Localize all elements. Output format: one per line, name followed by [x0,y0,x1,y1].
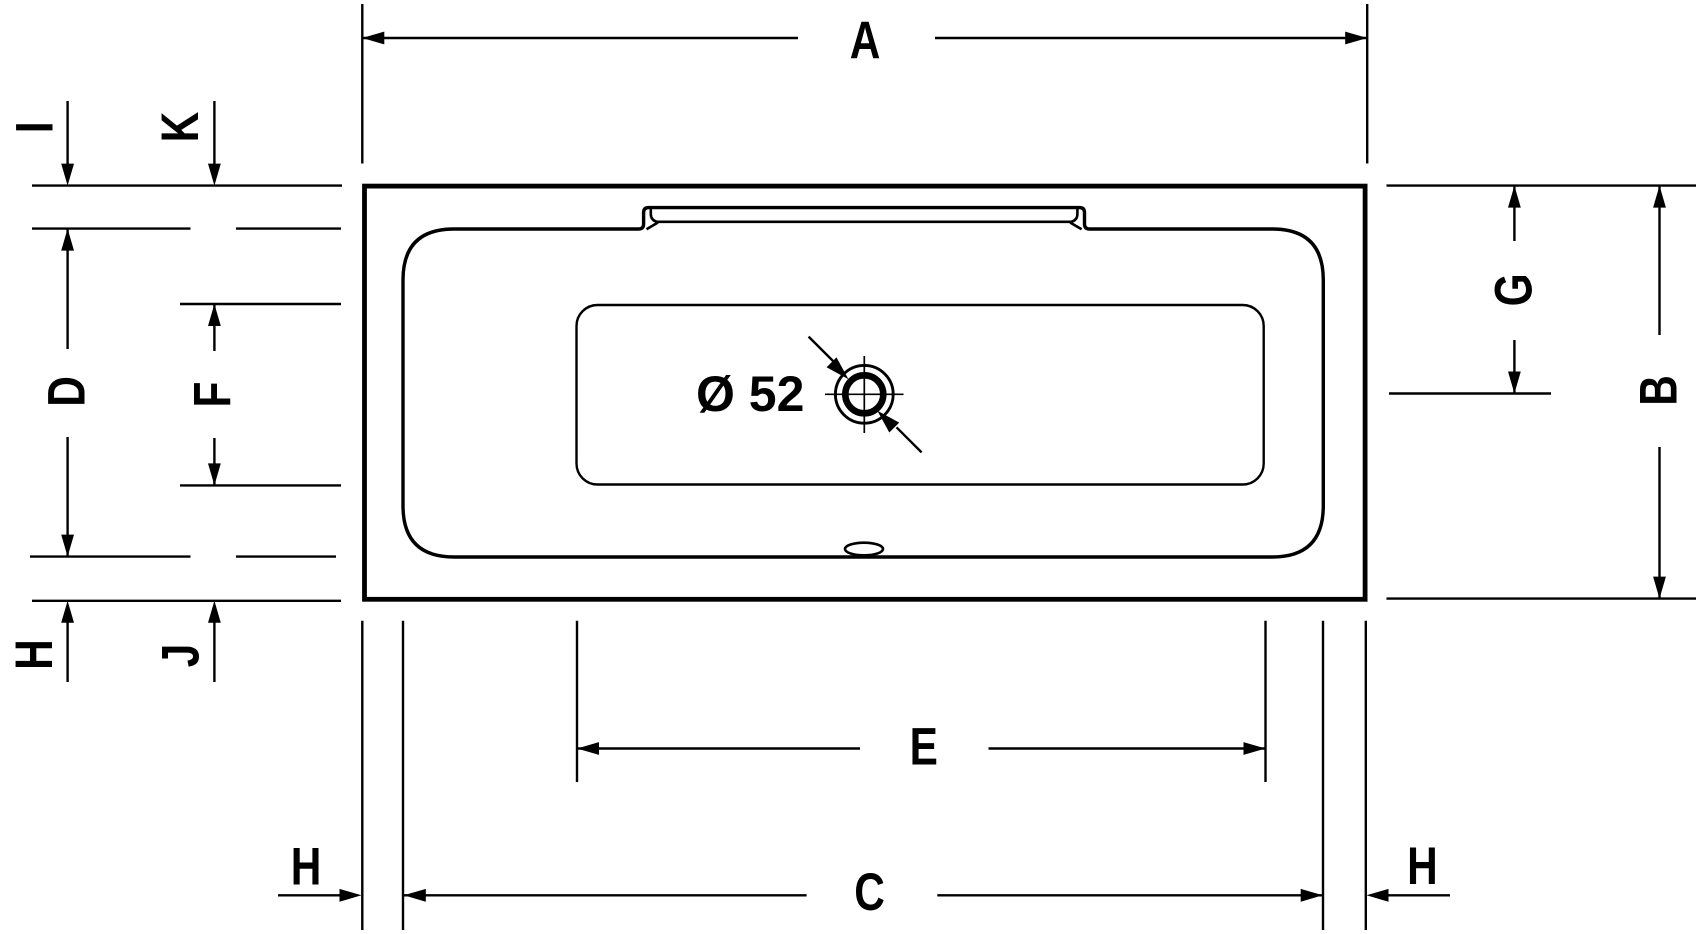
svg-text:J: J [152,644,211,668]
svg-text:H: H [5,639,64,670]
svg-text:F: F [184,382,243,408]
svg-text:H: H [1407,838,1438,897]
svg-text:A: A [850,12,881,71]
svg-text:G: G [1485,273,1544,306]
svg-text:D: D [38,376,97,407]
svg-text:C: C [854,863,885,922]
svg-text:E: E [910,718,938,777]
svg-text:I: I [6,122,65,134]
svg-text:B: B [1630,375,1689,406]
svg-text:K: K [151,111,210,142]
svg-text:Ø 52: Ø 52 [696,366,804,422]
svg-text:H: H [291,838,322,897]
